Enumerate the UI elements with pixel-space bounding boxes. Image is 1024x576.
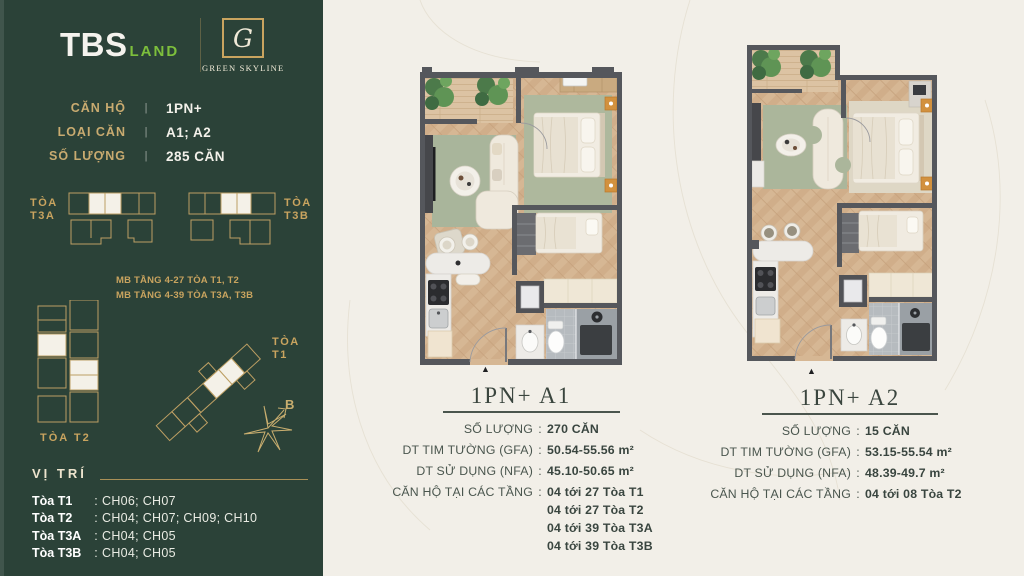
a2-small-room	[839, 211, 923, 253]
tower-t3b-label: TÒA T3B	[284, 197, 312, 223]
apartment-specs: CĂN HỘ | 1PN+ LOẠI CĂN | A1; A2 SỐ LƯỢNG…	[34, 96, 296, 168]
spec-label: SỐ LƯỢNG	[703, 424, 851, 438]
tower-units: CH04; CH05	[102, 546, 320, 560]
tbsland-logo: TBSLAND	[60, 28, 179, 61]
a1-small-room	[516, 213, 602, 255]
spec-value: 04 tới 39 Tòa T3A	[547, 521, 653, 535]
tower-t3b-line2: T3B	[284, 210, 312, 223]
a2-spec-quantity: SỐ LƯỢNG : 15 CĂN	[703, 424, 965, 438]
floor-range-note-1: MB TẦNG 4-27 TÒA T1, T2	[116, 274, 253, 289]
spec-label: CĂN HỘ TẠI CÁC TẦNG	[385, 485, 533, 499]
spec-value: 15 CĂN	[865, 424, 965, 438]
a2-title-underline	[762, 413, 938, 415]
separator: :	[90, 511, 102, 525]
a1-spec-floors-line2: 04 tới 27 Tòa T2	[385, 503, 647, 517]
green-skyline-logo: G GREEN SKYLINE	[202, 18, 284, 73]
tower-name: Tòa T3A	[32, 529, 90, 543]
spec-value: A1; A2	[166, 125, 296, 140]
spec-row-can-ho: CĂN HỘ | 1PN+	[34, 96, 296, 120]
spec-value: 270 CĂN	[547, 422, 647, 436]
spec-label: DT TIM TƯỜNG (GFA)	[385, 443, 533, 457]
vitri-underline	[100, 479, 308, 480]
tower-t3a-line1: TÒA	[30, 197, 58, 210]
tower-t2-keyplan	[34, 300, 102, 428]
spec-label: CĂN HỘ TẠI CÁC TẦNG	[703, 487, 851, 501]
separator: :	[533, 422, 547, 436]
spec-divider: |	[126, 102, 166, 114]
separator: :	[851, 487, 865, 501]
a1-spec-floors-line4: 04 tới 39 Tòa T3B	[385, 539, 647, 553]
spec-value: 45.10-50.65 m²	[547, 464, 647, 478]
vitri-list: Tòa T1 : CH06; CH07 Tòa T2 : CH04; CH07;…	[32, 492, 320, 562]
floor-range-notes: MB TẦNG 4-27 TÒA T1, T2 MB TẦNG 4-39 TÒA…	[116, 274, 253, 303]
separator: :	[533, 443, 547, 457]
separator: :	[851, 466, 865, 480]
a1-spec-gfa: DT TIM TƯỜNG (GFA) : 50.54-55.56 m²	[385, 443, 647, 457]
tower-t1-label: TÒA T1	[272, 336, 300, 362]
tower-units: CH04; CH07; CH09; CH10	[102, 511, 320, 525]
separator: :	[90, 494, 102, 508]
land-logo-text: LAND	[130, 44, 180, 59]
separator: :	[533, 464, 547, 478]
tower-name: Tòa T2	[32, 511, 90, 525]
a1-title: 1PN+ A1	[421, 383, 621, 409]
tower-name: Tòa T1	[32, 494, 90, 508]
tower-units: CH04; CH05	[102, 529, 320, 543]
spec-label: LOẠI CĂN	[34, 125, 126, 139]
monogram-g: G	[233, 26, 253, 51]
brochure-page: TBSLAND G GREEN SKYLINE CĂN HỘ | 1PN+ LO…	[0, 0, 1024, 576]
compass-north-label: B	[285, 397, 294, 412]
a1-title-underline	[443, 411, 620, 413]
spec-row-loai-can: LOẠI CĂN | A1; A2	[34, 120, 296, 144]
a1-entry-arrow: ▲	[481, 365, 490, 374]
spec-divider: |	[126, 150, 166, 162]
a1-spec-nfa: DT SỬ DỤNG (NFA) : 45.10-50.65 m²	[385, 464, 647, 478]
a2-specs: SỐ LƯỢNG : 15 CĂN DT TIM TƯỜNG (GFA) : 5…	[703, 424, 965, 508]
a2-entry-arrow: ▲	[807, 367, 816, 376]
a2-spec-gfa: DT TIM TƯỜNG (GFA) : 53.15-55.54 m²	[703, 445, 965, 459]
spec-row-so-luong: SỐ LƯỢNG | 285 CĂN	[34, 144, 296, 168]
tower-t3a-line2: T3A	[30, 210, 58, 223]
tower-t3a-label: TÒA T3A	[30, 197, 58, 223]
a1-specs: SỐ LƯỢNG : 270 CĂN DT TIM TƯỜNG (GFA) : …	[385, 422, 647, 557]
tbs-logo-text: TBS	[60, 28, 128, 61]
separator: :	[90, 529, 102, 543]
tower-t3b-line1: TÒA	[284, 197, 312, 210]
tower-name: Tòa T3B	[32, 546, 90, 560]
spec-divider: |	[126, 126, 166, 138]
spec-value: 285 CĂN	[166, 149, 296, 164]
tower-t1-line1: TÒA	[272, 336, 300, 349]
spec-label: DT TIM TƯỜNG (GFA)	[703, 445, 851, 459]
spec-label: SỐ LƯỢNG	[34, 149, 126, 163]
logo-divider	[200, 18, 201, 72]
spec-value: 1PN+	[166, 101, 296, 116]
a1-spec-floors: CĂN HỘ TẠI CÁC TẦNG : 04 tới 27 Tòa T1	[385, 485, 647, 499]
spec-label: DT SỬ DỤNG (NFA)	[703, 466, 851, 480]
vitri-row-t1: Tòa T1 : CH06; CH07	[32, 492, 320, 510]
a1-spec-quantity: SỐ LƯỢNG : 270 CĂN	[385, 422, 647, 436]
tower-t3b-keyplan	[182, 190, 282, 250]
separator: :	[533, 485, 547, 499]
vitri-heading: VỊ TRÍ	[32, 466, 87, 481]
brand-name: GREEN SKYLINE	[202, 63, 284, 73]
a2-title: 1PN+ A2	[750, 385, 950, 411]
spec-label: CĂN HỘ	[34, 101, 126, 115]
spec-value: 48.39-49.7 m²	[865, 466, 965, 480]
sidebar: TBSLAND G GREEN SKYLINE CĂN HỘ | 1PN+ LO…	[0, 0, 323, 576]
spec-value: 04 tới 27 Tòa T2	[547, 503, 647, 517]
spec-value: 04 tới 27 Tòa T1	[547, 485, 647, 499]
separator: :	[851, 445, 865, 459]
monogram-frame: G	[222, 18, 264, 58]
a2-spec-nfa: DT SỬ DỤNG (NFA) : 48.39-49.7 m²	[703, 466, 965, 480]
tower-t2-label: TÒA T2	[40, 432, 91, 444]
spec-value: 04 tới 08 Tòa T2	[865, 487, 965, 501]
floor-range-note-2: MB TẦNG 4-39 TÒA T3A, T3B	[116, 289, 253, 304]
tower-t1-line2: T1	[272, 349, 300, 362]
spec-label: DT SỬ DỤNG (NFA)	[385, 464, 533, 478]
spec-label: SỐ LƯỢNG	[385, 422, 533, 436]
spec-value: 50.54-55.56 m²	[547, 443, 647, 457]
spec-value: 53.15-55.54 m²	[865, 445, 965, 459]
spec-value: 04 tới 39 Tòa T3B	[547, 539, 653, 553]
tower-units: CH06; CH07	[102, 494, 320, 508]
a1-spec-floors-line3: 04 tới 39 Tòa T3A	[385, 521, 647, 535]
floorplan-a1	[420, 67, 622, 365]
separator: :	[90, 546, 102, 560]
tower-t3a-keyplan	[62, 190, 162, 250]
separator: :	[851, 424, 865, 438]
vitri-row-t2: Tòa T2 : CH04; CH07; CH09; CH10	[32, 510, 320, 528]
vitri-row-t3a: Tòa T3A : CH04; CH05	[32, 527, 320, 545]
a2-spec-floors: CĂN HỘ TẠI CÁC TẦNG : 04 tới 08 Tòa T2	[703, 487, 965, 501]
floorplan-a2	[747, 45, 937, 367]
vitri-row-t3b: Tòa T3B : CH04; CH05	[32, 545, 320, 563]
